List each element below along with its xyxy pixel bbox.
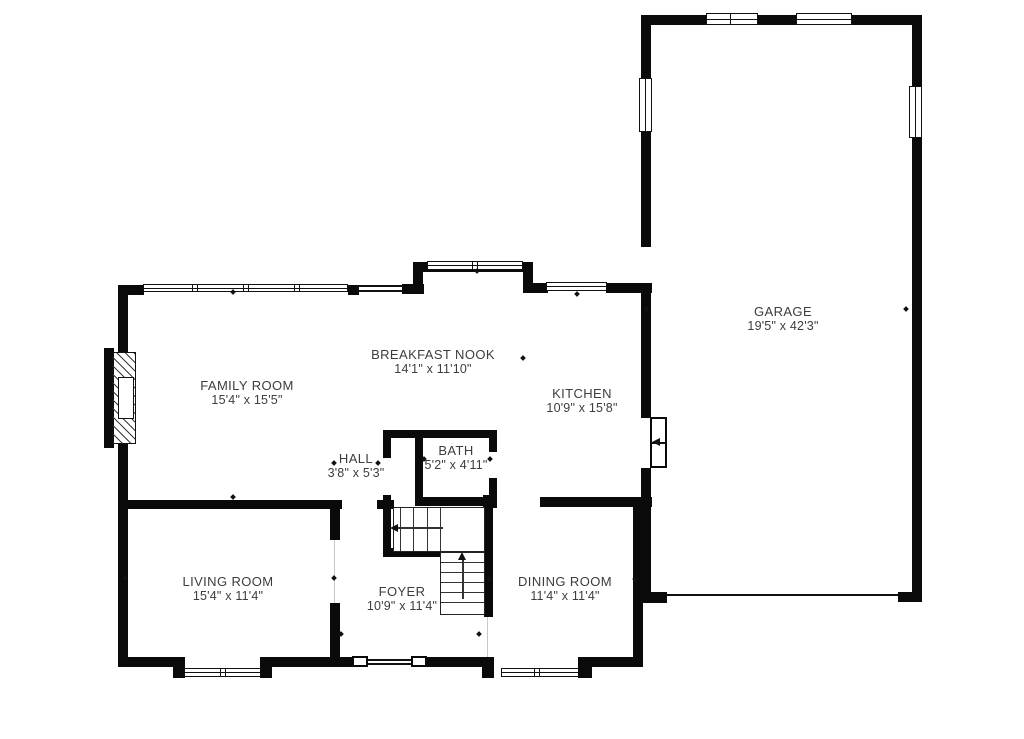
window-divider	[539, 669, 540, 676]
wall	[260, 657, 272, 678]
wall	[348, 285, 359, 295]
wall	[641, 15, 651, 80]
wall	[383, 430, 497, 438]
room-dimensions: 19'5" x 42'3"	[747, 319, 818, 334]
thin-line	[368, 663, 411, 665]
room-name: FOYER	[367, 584, 437, 599]
stair-tread	[413, 508, 414, 551]
room-label-hall: HALL 3'8" x 5'3"	[328, 451, 385, 481]
room-label-dining-room: DINING ROOM 11'4" x 11'4"	[518, 574, 612, 604]
dimension-tick	[520, 355, 526, 361]
thin-line	[487, 617, 488, 657]
stair-direction-line	[462, 559, 464, 599]
dimension-tick	[487, 456, 493, 462]
thin-line	[334, 540, 335, 603]
wall	[898, 592, 922, 602]
window-pane-line	[707, 19, 757, 20]
window-pane-line	[547, 286, 606, 287]
dimension-tick	[476, 631, 482, 637]
stair-tread	[400, 508, 401, 551]
room-name: BREAKFAST NOOK	[371, 347, 495, 362]
stair-tread	[427, 508, 428, 551]
wall	[643, 593, 667, 603]
room-label-living-room: LIVING ROOM 15'4" x 11'4"	[182, 574, 273, 604]
stair-direction-arrow	[390, 524, 398, 532]
wall	[383, 430, 391, 458]
fireplace-firebox	[118, 377, 134, 419]
window-pane-line	[185, 672, 260, 673]
wall	[425, 657, 484, 667]
room-name: DINING ROOM	[518, 574, 612, 589]
room-label-kitchen: KITCHEN 10'9" x 15'8"	[546, 386, 617, 416]
window-divider	[197, 285, 198, 291]
wall	[641, 130, 651, 247]
window-pane-line	[915, 87, 916, 137]
window-divider	[730, 14, 731, 24]
room-label-family-room: FAMILY ROOM 15'4" x 15'5"	[200, 378, 294, 408]
wall	[489, 430, 497, 452]
dimension-tick	[331, 575, 337, 581]
room-dimensions: 3'8" x 5'3"	[328, 466, 385, 481]
dimension-tick	[574, 291, 580, 297]
thin-line	[667, 594, 898, 596]
room-dimensions: 10'9" x 11'4"	[367, 599, 437, 614]
wall	[540, 497, 652, 507]
room-label-breakfast-nook: BREAKFAST NOOK 14'1" x 11'10"	[371, 347, 495, 377]
room-dimensions: 10'9" x 15'8"	[546, 401, 617, 416]
room-name: FAMILY ROOM	[200, 378, 294, 393]
wall	[118, 443, 128, 667]
wall	[330, 502, 340, 540]
stair-direction-arrow	[458, 552, 466, 560]
stair-tread	[441, 602, 484, 603]
garage-entry-door-arrow	[652, 438, 660, 446]
window-divider	[299, 285, 300, 291]
wall	[330, 603, 340, 657]
wall	[118, 285, 128, 353]
room-name: GARAGE	[747, 304, 818, 319]
room-dimensions: 15'4" x 15'5"	[200, 393, 294, 408]
wall	[118, 500, 342, 509]
room-dimensions: 15'4" x 11'4"	[182, 589, 273, 604]
room-name: LIVING ROOM	[182, 574, 273, 589]
window-divider	[534, 669, 535, 676]
window-divider	[225, 669, 226, 676]
window-divider	[243, 285, 244, 291]
wall	[415, 430, 423, 503]
dimension-tick	[903, 306, 909, 312]
window-pane-line	[645, 79, 646, 131]
floor-plan: FAMILY ROOM 15'4" x 15'5" BREAKFAST NOOK…	[0, 0, 1024, 739]
wall	[643, 15, 922, 25]
room-label-bath: BATH 5'2" x 4'11"	[424, 443, 487, 473]
wall	[482, 657, 494, 678]
thin-line	[359, 285, 403, 287]
front-door-jamb	[352, 656, 368, 667]
room-label-garage: GARAGE 19'5" x 42'3"	[747, 304, 818, 334]
window-divider	[248, 285, 249, 291]
wall	[272, 657, 352, 667]
window-pane-line	[502, 672, 578, 673]
dimension-tick	[230, 494, 236, 500]
room-label-foyer: FOYER 10'9" x 11'4"	[367, 584, 437, 614]
window-pane-line	[428, 265, 522, 266]
thin-line	[359, 290, 403, 292]
wall	[484, 505, 493, 617]
wall	[641, 283, 651, 418]
stair-tread	[440, 508, 441, 551]
room-dimensions: 11'4" x 11'4"	[518, 589, 612, 604]
room-name: KITCHEN	[546, 386, 617, 401]
stair-direction-line	[397, 527, 443, 529]
room-name: BATH	[424, 443, 487, 458]
window-divider	[472, 262, 473, 269]
room-dimensions: 14'1" x 11'10"	[371, 362, 495, 377]
front-door-jamb	[411, 656, 427, 667]
window-divider	[294, 285, 295, 291]
window-pane-line	[797, 19, 851, 20]
window-divider	[220, 669, 221, 676]
thin-line	[368, 659, 411, 661]
room-dimensions: 5'2" x 4'11"	[424, 458, 487, 473]
wall	[523, 262, 533, 293]
staircase-upper-flight	[393, 507, 485, 552]
window-pane-line	[144, 288, 347, 289]
window-divider	[192, 285, 193, 291]
wall	[118, 657, 175, 667]
wall	[606, 283, 652, 293]
